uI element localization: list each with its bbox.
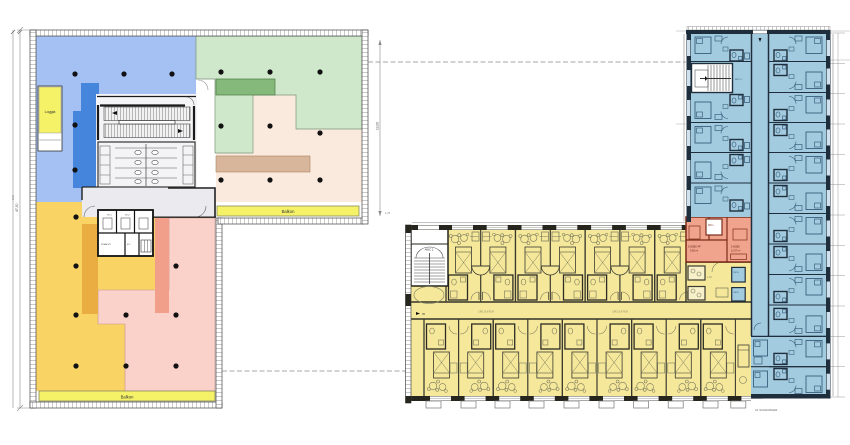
- svg-text:L.06: L.06: [707, 276, 712, 279]
- svg-text:CIRCULATION: CIRCULATION: [612, 311, 628, 314]
- svg-text:5.NGBÜ: 5.NGBÜ: [731, 246, 740, 249]
- svg-text:47,50: 47,50: [15, 203, 19, 212]
- svg-text:9.58 m²: 9.58 m²: [690, 250, 698, 253]
- svg-text:Loggia: Loggia: [45, 110, 56, 114]
- svg-text:CIRCULATION: CIRCULATION: [478, 311, 494, 314]
- svg-text:12.07 m²: 12.07 m²: [731, 250, 741, 253]
- svg-text:WC/L: WC/L: [734, 272, 740, 274]
- svg-text:WC/L: WC/L: [734, 292, 740, 294]
- svg-text:1,75: 1,75: [385, 211, 391, 215]
- svg-text:A1 SCHNURGER.: A1 SCHNURGER.: [755, 408, 778, 412]
- svg-text:19,06: 19,06: [376, 122, 380, 130]
- svg-text:BÜD 4: BÜD 4: [735, 78, 742, 81]
- svg-text:SCHACHT: SCHACHT: [101, 243, 111, 246]
- svg-text:Balkon: Balkon: [121, 394, 134, 399]
- svg-text:12,5: 12,5: [11, 194, 15, 200]
- svg-text:WC L: WC L: [708, 224, 715, 227]
- svg-text:5.NGBÜ 4P: 5.NGBÜ 4P: [688, 246, 701, 249]
- svg-text:AWC 1: AWC 1: [425, 248, 434, 252]
- svg-text:Balkon: Balkon: [282, 209, 295, 214]
